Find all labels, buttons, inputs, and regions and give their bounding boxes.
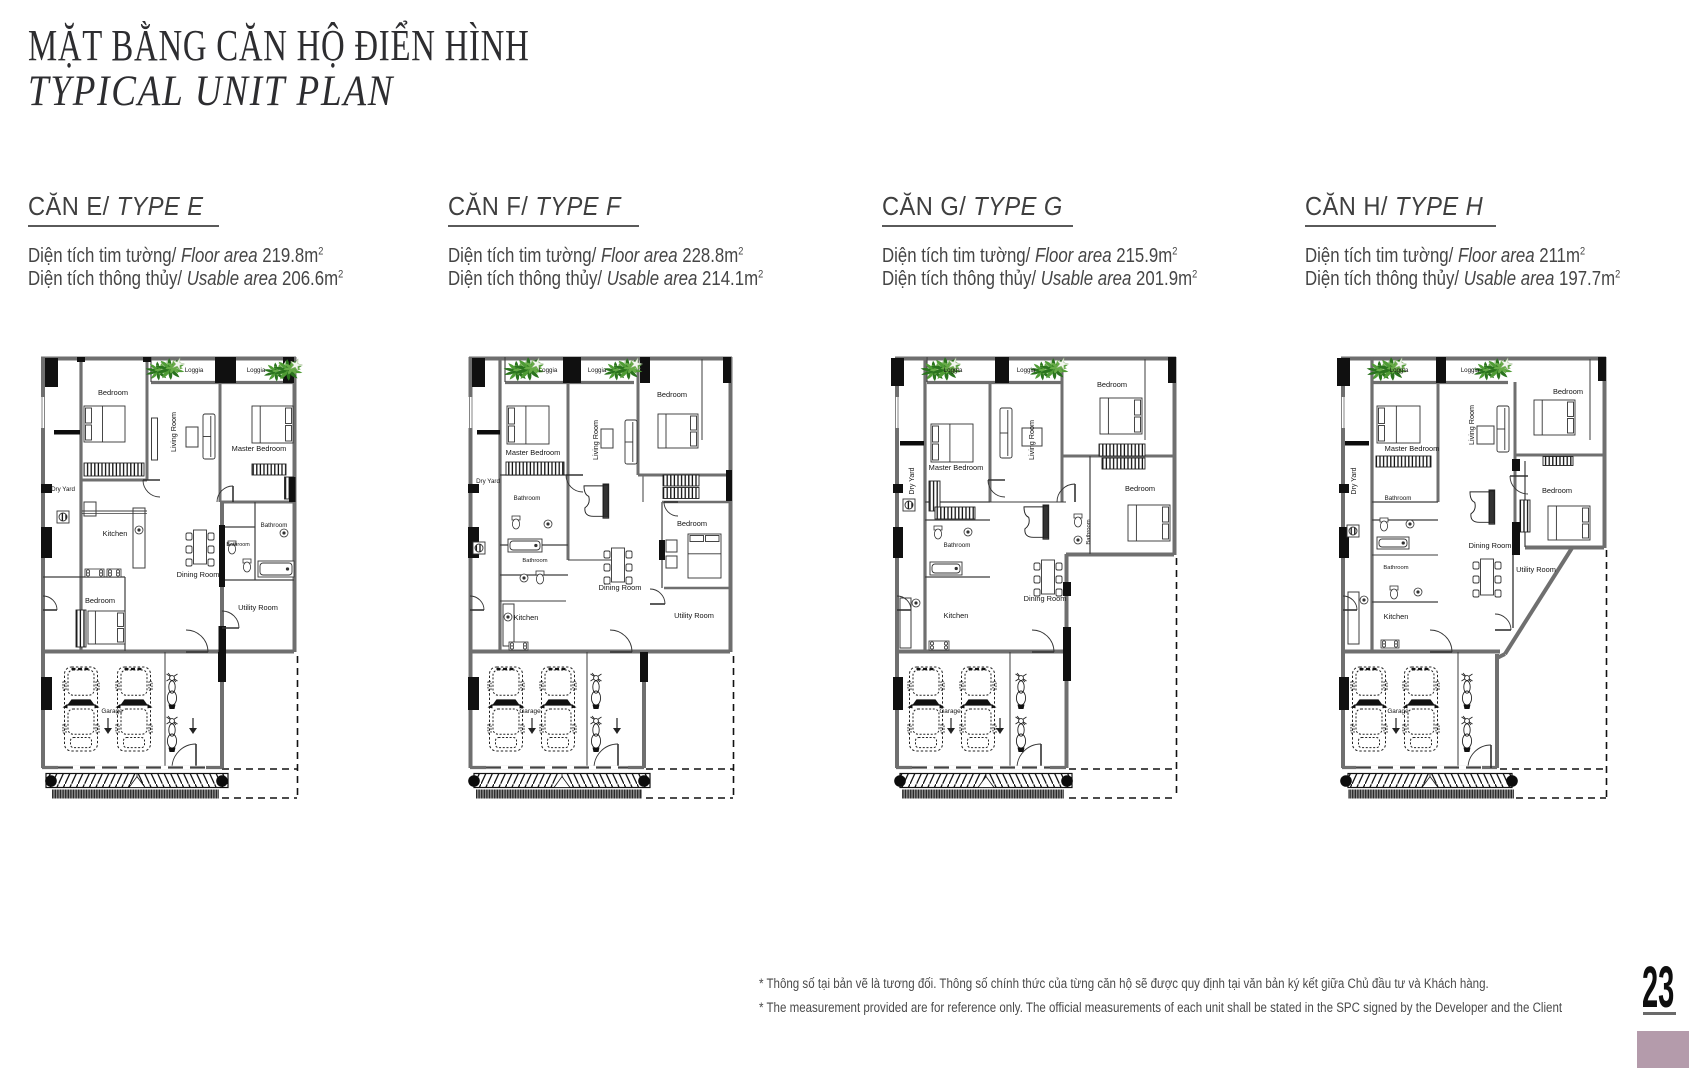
svg-text:Bathroom: Bathroom	[261, 522, 288, 529]
svg-text:Bathroom: Bathroom	[514, 495, 541, 502]
svg-text:Loggia: Loggia	[1390, 367, 1409, 374]
svg-text:Loggia: Loggia	[1461, 367, 1480, 374]
svg-text:Kitchen: Kitchen	[1384, 612, 1409, 621]
svg-text:Utility Room: Utility Room	[674, 611, 714, 620]
svg-text:Bathroom: Bathroom	[226, 542, 250, 548]
svg-text:Dry Yard: Dry Yard	[909, 467, 916, 494]
svg-text:Bedroom: Bedroom	[657, 390, 687, 399]
svg-text:Bathroom: Bathroom	[944, 542, 971, 549]
svg-text:Bedroom: Bedroom	[1553, 387, 1583, 396]
svg-text:Dining Room: Dining Room	[1024, 594, 1067, 603]
svg-text:Dining Room: Dining Room	[1469, 541, 1512, 550]
svg-text:Garage: Garage	[1387, 708, 1409, 715]
svg-text:Utility Room: Utility Room	[1516, 565, 1556, 574]
svg-text:Living Room: Living Room	[1027, 420, 1036, 460]
svg-text:Kitchen: Kitchen	[944, 611, 969, 620]
svg-text:Master Bedroom: Master Bedroom	[232, 444, 287, 453]
svg-text:Garage: Garage	[939, 708, 961, 715]
svg-text:Living Room: Living Room	[169, 412, 178, 452]
svg-text:Dining Room: Dining Room	[599, 583, 642, 592]
svg-text:Garage: Garage	[101, 708, 123, 715]
svg-text:Loggia: Loggia	[1017, 367, 1036, 374]
svg-text:Dining Room: Dining Room	[177, 570, 220, 579]
svg-text:Bathroom: Bathroom	[1385, 495, 1412, 502]
svg-text:Bedroom: Bedroom	[677, 519, 707, 528]
svg-text:Utility Room: Utility Room	[238, 603, 278, 612]
svg-text:Master Bedroom: Master Bedroom	[506, 448, 561, 457]
svg-text:Dry Yard: Dry Yard	[51, 486, 75, 493]
svg-text:Loggia: Loggia	[588, 367, 607, 374]
svg-text:Loggia: Loggia	[185, 367, 204, 374]
svg-text:Bathroom: Bathroom	[1383, 565, 1408, 571]
svg-text:Loggia: Loggia	[539, 367, 558, 374]
svg-text:Master Bedroom: Master Bedroom	[929, 463, 984, 472]
svg-text:Garage: Garage	[519, 708, 541, 715]
svg-text:Living Room: Living Room	[591, 420, 600, 460]
svg-text:Dry Yard: Dry Yard	[1351, 467, 1358, 494]
svg-text:Kitchen: Kitchen	[103, 529, 128, 538]
svg-text:Bedroom: Bedroom	[98, 388, 128, 397]
svg-text:Bedroom: Bedroom	[1097, 380, 1127, 389]
svg-text:Master Bedroom: Master Bedroom	[1385, 444, 1440, 453]
svg-text:Loggia: Loggia	[247, 367, 266, 374]
svg-text:Dry Yard: Dry Yard	[476, 478, 500, 485]
svg-text:Kitchen: Kitchen	[514, 613, 539, 622]
svg-text:Bathroom: Bathroom	[1086, 519, 1092, 544]
svg-text:Bedroom: Bedroom	[1542, 486, 1572, 495]
svg-text:Bathroom: Bathroom	[522, 558, 547, 564]
svg-text:Bedroom: Bedroom	[1125, 484, 1155, 493]
svg-text:Bedroom: Bedroom	[85, 596, 115, 605]
svg-text:Living Room: Living Room	[1467, 405, 1476, 445]
svg-text:Loggia: Loggia	[944, 367, 963, 374]
